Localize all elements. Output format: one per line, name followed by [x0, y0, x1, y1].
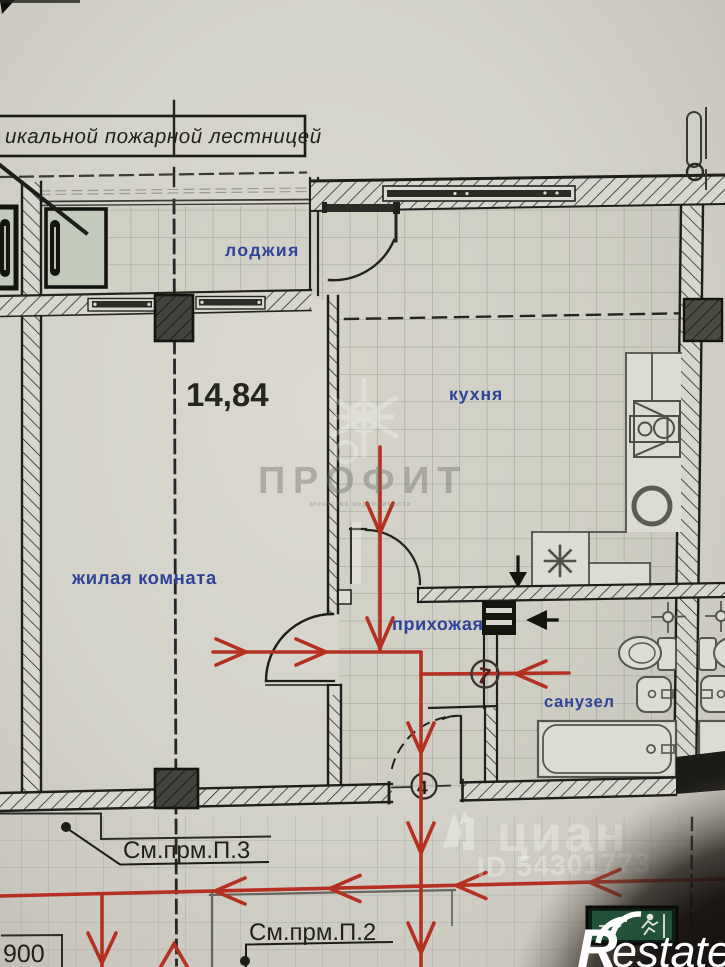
svg-text:лоджия: лоджия — [225, 240, 300, 260]
svg-text:estate: estate — [612, 926, 725, 967]
svg-text:прихожая: прихожая — [392, 614, 484, 634]
svg-text:жилая комната: жилая комната — [71, 567, 217, 588]
svg-text:агентство недвижимости: агентство недвижимости — [309, 501, 412, 508]
svg-text:См.прм.П.3: См.прм.П.3 — [123, 837, 250, 864]
svg-text:икальной пожарной лестницей: икальной пожарной лестницей — [5, 125, 322, 148]
svg-text:900: 900 — [3, 940, 45, 967]
svg-text:кухня: кухня — [449, 384, 503, 404]
svg-text:санузел: санузел — [544, 693, 615, 711]
svg-text:ПРОФИТ: ПРОФИТ — [258, 460, 468, 502]
svg-text:14,84: 14,84 — [186, 376, 269, 413]
